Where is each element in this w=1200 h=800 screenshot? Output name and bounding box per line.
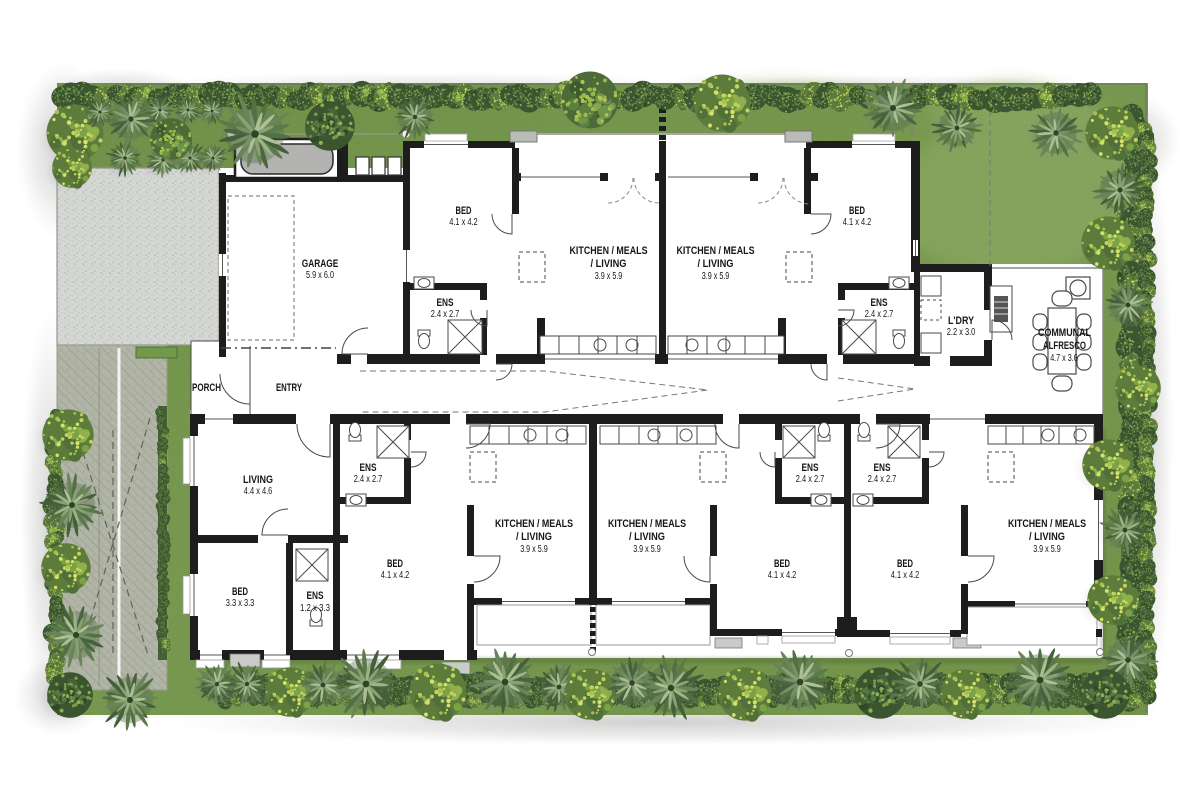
svg-text:KITCHEN / MEALS: KITCHEN / MEALS (677, 245, 755, 257)
svg-text:5.9 x 6.0: 5.9 x 6.0 (306, 270, 334, 281)
svg-text:ENTRY: ENTRY (276, 382, 302, 394)
svg-text:KITCHEN / MEALS: KITCHEN / MEALS (495, 518, 573, 530)
svg-text:/ LIVING: / LIVING (591, 258, 627, 270)
svg-text:BED: BED (774, 558, 790, 570)
svg-text:3.3 x 3.3: 3.3 x 3.3 (226, 598, 255, 609)
svg-text:KITCHEN / MEALS: KITCHEN / MEALS (1008, 518, 1086, 530)
svg-text:3.9 x 5.9: 3.9 x 5.9 (702, 271, 730, 282)
svg-text:4.1 x 4.2: 4.1 x 4.2 (449, 217, 478, 228)
svg-text:KITCHEN / MEALS: KITCHEN / MEALS (570, 245, 648, 257)
svg-text:ENS: ENS (360, 462, 377, 474)
svg-text:/ LIVING: / LIVING (629, 531, 665, 543)
svg-text:BED: BED (456, 205, 472, 217)
svg-text:BED: BED (387, 558, 403, 570)
svg-text:COMMUNAL: COMMUNAL (1038, 327, 1091, 339)
svg-text:PORCH: PORCH (192, 382, 221, 394)
svg-text:2.4 x 2.7: 2.4 x 2.7 (354, 474, 383, 485)
svg-text:2.4 x 2.7: 2.4 x 2.7 (796, 474, 825, 485)
svg-text:3.9 x 5.9: 3.9 x 5.9 (1033, 544, 1061, 555)
svg-text:4.1 x 4.2: 4.1 x 4.2 (381, 570, 410, 581)
svg-text:4.4 x 4.6: 4.4 x 4.6 (244, 486, 273, 497)
svg-text:2.4 x 2.7: 2.4 x 2.7 (865, 309, 894, 320)
svg-text:3.9 x 5.9: 3.9 x 5.9 (633, 544, 661, 555)
svg-text:L'DRY: L'DRY (948, 315, 975, 327)
svg-text:/ LIVING: / LIVING (698, 258, 734, 270)
svg-text:/ LIVING: / LIVING (1029, 531, 1065, 543)
svg-text:2.4 x 2.7: 2.4 x 2.7 (431, 309, 460, 320)
svg-text:4.1 x 4.2: 4.1 x 4.2 (891, 570, 920, 581)
svg-text:ENS: ENS (307, 590, 324, 602)
svg-text:BED: BED (897, 558, 913, 570)
svg-text:KITCHEN / MEALS: KITCHEN / MEALS (608, 518, 686, 530)
svg-text:BED: BED (849, 205, 865, 217)
svg-text:ENS: ENS (802, 462, 819, 474)
svg-text:2.2 x 3.0: 2.2 x 3.0 (947, 327, 976, 338)
svg-text:2.4 x 2.7: 2.4 x 2.7 (868, 474, 897, 485)
svg-text:4.1 x 4.2: 4.1 x 4.2 (768, 570, 797, 581)
svg-text:3.9 x 5.9: 3.9 x 5.9 (595, 271, 623, 282)
svg-text:1.2 x 3.3: 1.2 x 3.3 (300, 603, 330, 614)
svg-text:/ LIVING: / LIVING (516, 531, 552, 543)
svg-text:ENS: ENS (874, 462, 891, 474)
svg-text:ENS: ENS (871, 297, 888, 309)
svg-text:3.9 x 5.9: 3.9 x 5.9 (520, 544, 548, 555)
svg-text:LIVING: LIVING (243, 474, 273, 486)
svg-text:4.7 x 3.6: 4.7 x 3.6 (1050, 353, 1078, 364)
svg-text:ENS: ENS (437, 297, 454, 309)
svg-text:BED: BED (232, 586, 248, 598)
svg-text:ALFRESCO: ALFRESCO (1043, 340, 1086, 352)
svg-text:GARAGE: GARAGE (302, 258, 339, 270)
svg-text:4.1 x 4.2: 4.1 x 4.2 (843, 217, 872, 228)
